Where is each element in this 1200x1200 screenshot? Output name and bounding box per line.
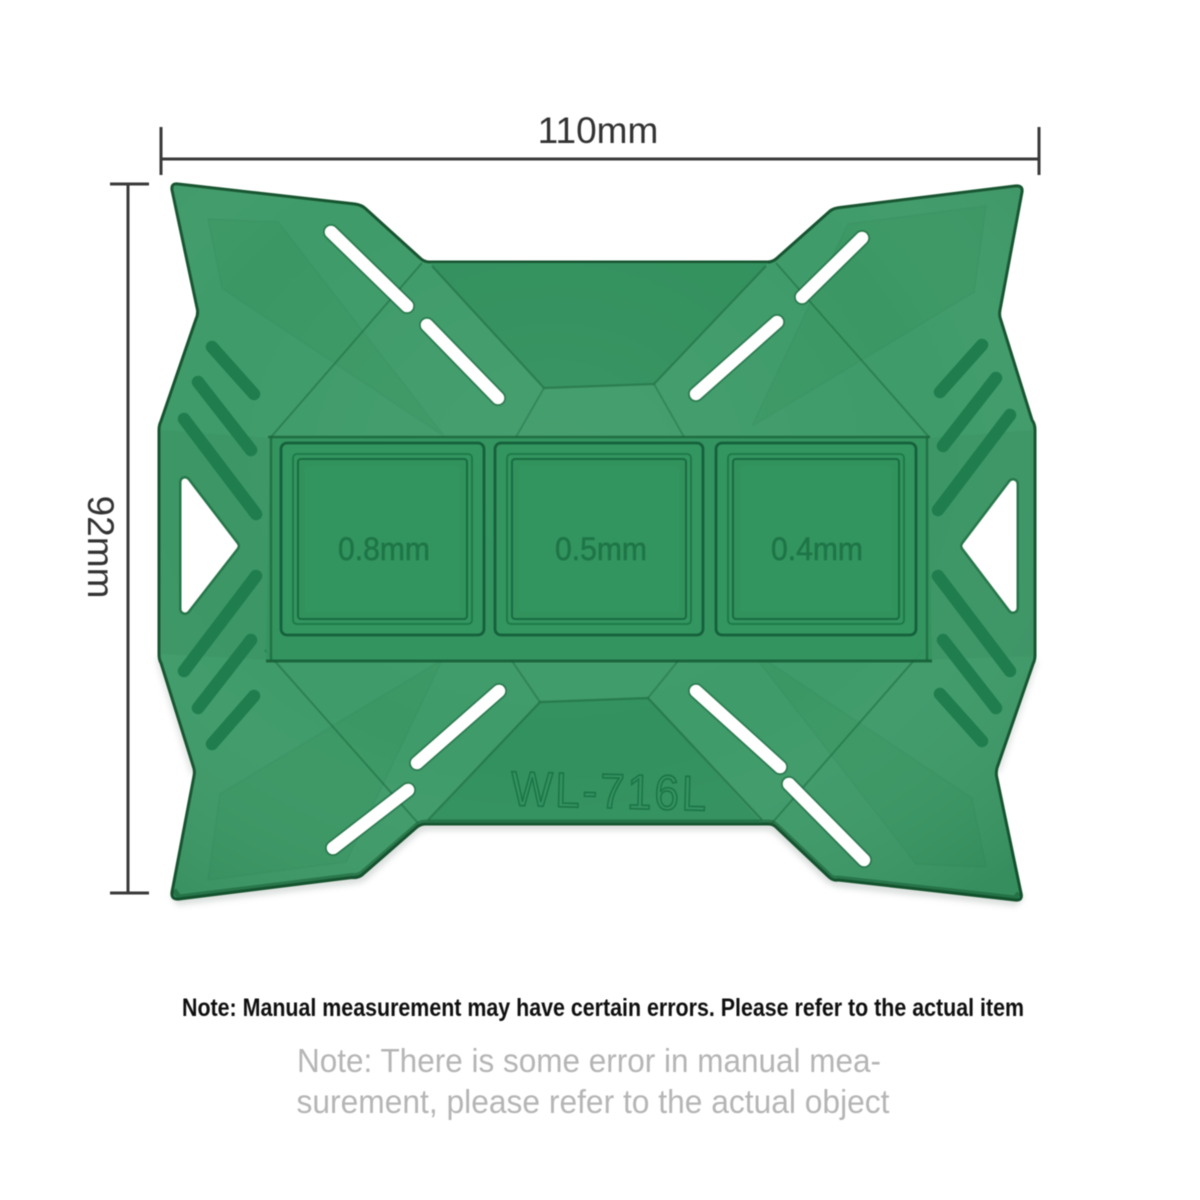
svg-text:surement, please refer to the: surement, please refer to the actual obj…: [297, 1083, 890, 1120]
svg-text:0.8mm: 0.8mm: [338, 531, 430, 567]
svg-text:110mm: 110mm: [538, 110, 659, 151]
svg-text:92mm: 92mm: [80, 496, 121, 599]
svg-text:Note: Manual measurement may h: Note: Manual measurement may have certai…: [182, 994, 1024, 1022]
svg-text:0.5mm: 0.5mm: [555, 531, 647, 567]
svg-text:0.4mm: 0.4mm: [771, 531, 863, 567]
svg-text:WL-716L: WL-716L: [510, 762, 709, 821]
svg-text:Note: There is some error in m: Note: There is some error in manual mea-: [297, 1042, 881, 1079]
